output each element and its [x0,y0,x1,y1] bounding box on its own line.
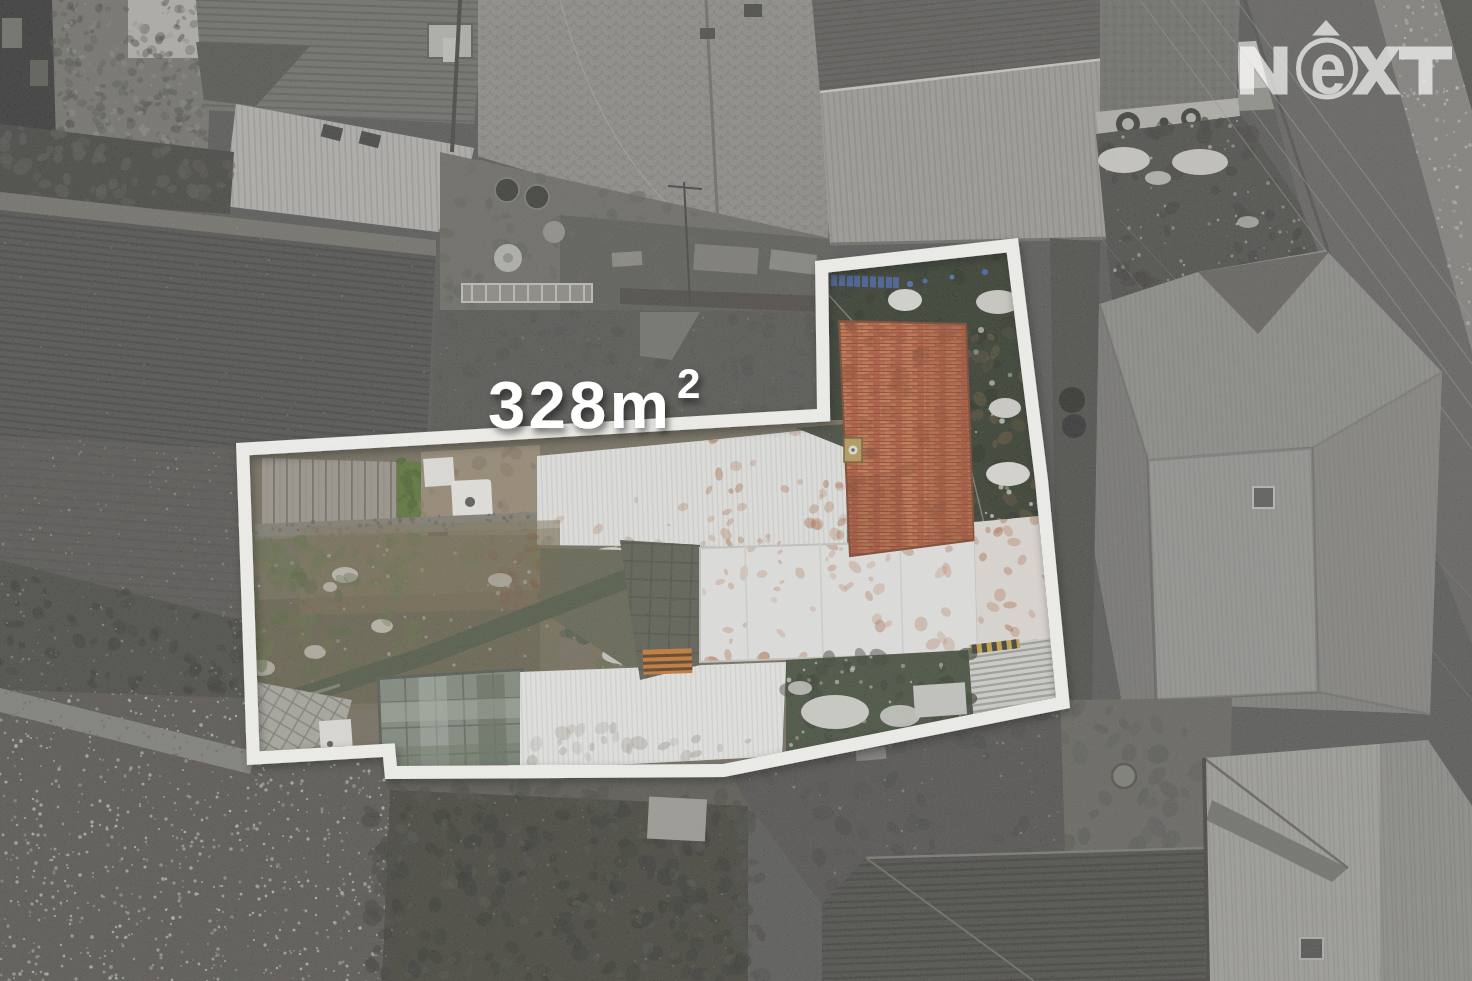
svg-text:328m: 328m [488,367,672,442]
svg-text:e: e [1310,27,1346,110]
svg-text:2: 2 [677,360,700,407]
